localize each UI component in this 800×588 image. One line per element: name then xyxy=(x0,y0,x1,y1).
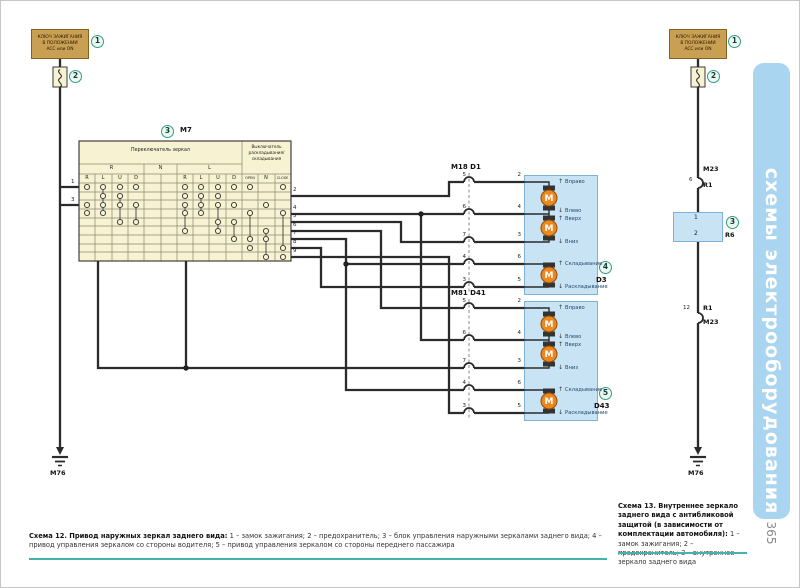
pin-label: 3 xyxy=(511,359,521,365)
pin-label: 1 xyxy=(71,180,75,186)
mirror-actuator-passenger-box xyxy=(524,301,598,421)
column-header: U xyxy=(210,176,226,181)
down-arrow-icon: ↓ xyxy=(558,333,563,340)
unit-ref: R1 xyxy=(703,182,713,189)
pin-label: 7 xyxy=(456,233,466,239)
ground-label: М76 xyxy=(688,470,704,477)
caption-title: Схема 12. Привод наружных зеркал заднего… xyxy=(29,532,227,540)
motor-direction-label: Вправо xyxy=(565,179,585,185)
pin-label: 7 xyxy=(293,231,297,237)
pin-label: 6 xyxy=(511,255,521,261)
motor-direction-label: Складывание xyxy=(565,261,602,267)
pin-label: 6 xyxy=(689,178,693,184)
motor-direction-label: Раскладывание xyxy=(565,410,608,416)
unit-ref: R1 xyxy=(703,305,713,312)
harness-ref: M23 xyxy=(703,166,719,173)
column-header-open: OPEN xyxy=(242,177,258,181)
caption-divider xyxy=(29,558,607,560)
ignition-switch-box: КЛЮЧ ЗАЖИГАНИЯ В ПОЛОЖЕНИИ ACC или ON xyxy=(31,29,89,59)
column-header-n: N xyxy=(258,176,274,181)
callout-2: 2 xyxy=(707,70,720,83)
table-header-left: Переключатель зеркал xyxy=(81,149,240,154)
pin-label: 2 xyxy=(293,188,297,194)
down-arrow-icon: ↓ xyxy=(558,283,563,290)
connector-ref: M18 D1 xyxy=(451,164,481,171)
mirror-actuator-driver-box xyxy=(524,175,598,295)
scheme13-caption: Схема 13. Внутреннее зеркало заднего вид… xyxy=(618,502,747,568)
table-header-right: Выключатель раскладывания/ складывания xyxy=(243,144,290,162)
ignition-switch-box-2: КЛЮЧ ЗАЖИГАНИЯ В ПОЛОЖЕНИИ ACC или ON xyxy=(669,29,727,59)
up-arrow-icon: ↑ xyxy=(558,386,563,393)
motor-direction-label: Раскладывание xyxy=(565,284,608,290)
callout-3: 3 xyxy=(161,125,174,138)
group-header-r: R xyxy=(79,166,144,171)
up-arrow-icon: ↑ xyxy=(558,178,563,185)
ground-symbols xyxy=(52,447,706,466)
pin-label: 6 xyxy=(511,381,521,387)
down-arrow-icon: ↓ xyxy=(558,364,563,371)
component-ref-m7: M7 xyxy=(180,127,192,134)
component-ref-d43: D43 xyxy=(594,403,610,410)
motor-direction-label: Вверх xyxy=(565,342,581,348)
up-arrow-icon: ↑ xyxy=(558,304,563,311)
column-header: L xyxy=(95,176,111,181)
group-header-l: L xyxy=(177,166,242,171)
pin-label: 6 xyxy=(293,223,297,229)
caption-divider xyxy=(618,552,747,554)
pin-label: 4 xyxy=(293,206,297,212)
pin-label: 4 xyxy=(511,331,521,337)
column-header: D xyxy=(226,176,242,181)
motor-direction-label: Вправо xyxy=(565,305,585,311)
pin-label: 2 xyxy=(511,299,521,305)
group-header-n: N xyxy=(144,166,177,171)
down-arrow-icon: ↓ xyxy=(558,409,563,416)
column-header: D xyxy=(128,176,144,181)
down-arrow-icon: ↓ xyxy=(558,238,563,245)
callout-1: 1 xyxy=(728,35,741,48)
motor-direction-label: Вниз xyxy=(565,239,578,245)
column-header: R xyxy=(177,176,193,181)
caption-title: Схема 13. Внутреннее зеркало заднего вид… xyxy=(618,502,738,538)
pin-label: 6 xyxy=(456,331,466,337)
pin-label: 5 xyxy=(511,278,521,284)
pin-label: 3 xyxy=(511,233,521,239)
pin-label: 5 xyxy=(511,404,521,410)
motor-direction-label: Вверх xyxy=(565,216,581,222)
pin-label: 3 xyxy=(71,198,75,204)
down-arrow-icon: ↓ xyxy=(558,207,563,214)
scheme12-caption: Схема 12. Привод наружных зеркал заднего… xyxy=(29,532,607,551)
component-ref-d3: D3 xyxy=(596,277,607,284)
motor-direction-label: Влево xyxy=(565,334,581,340)
pin-label: 8 xyxy=(293,240,297,246)
pin-label: 2 xyxy=(511,173,521,179)
column-header: L xyxy=(193,176,209,181)
up-arrow-icon: ↑ xyxy=(558,260,563,267)
harness-ref: M23 xyxy=(703,319,719,326)
fuse-icons xyxy=(53,67,705,87)
ground-label: М76 xyxy=(50,470,66,477)
component-ref-r6: R6 xyxy=(725,232,735,239)
pin-label: 5 xyxy=(456,173,466,179)
pin-label: 3 xyxy=(456,278,466,284)
column-header-close: CLOSE xyxy=(274,177,291,181)
inner-mirror-box xyxy=(673,212,723,242)
pin-label: 4 xyxy=(456,381,466,387)
connector-ref: M81 D41 xyxy=(451,290,486,297)
column-header: R xyxy=(79,176,95,181)
pin-label: 4 xyxy=(511,205,521,211)
page-number: 365 xyxy=(764,522,778,545)
pin-label: 1 xyxy=(694,215,698,221)
motor-direction-label: Влево xyxy=(565,208,581,214)
motor-direction-label: Вниз xyxy=(565,365,578,371)
callout-3: 3 xyxy=(726,216,739,229)
pin-label: 5 xyxy=(293,214,297,220)
callout-1: 1 xyxy=(91,35,104,48)
pin-label: 2 xyxy=(694,231,698,237)
section-title-vertical: схемы электрооборудования xyxy=(761,168,783,515)
pin-label: 6 xyxy=(456,205,466,211)
pin-label: 9 xyxy=(293,249,297,255)
pin-label: 3 xyxy=(456,404,466,410)
motor-direction-label: Складывание xyxy=(565,387,602,393)
pin-label: 7 xyxy=(456,359,466,365)
up-arrow-icon: ↑ xyxy=(558,215,563,222)
pin-label: 5 xyxy=(456,299,466,305)
pin-label: 12 xyxy=(683,306,690,312)
column-header: U xyxy=(112,176,128,181)
pin-label: 4 xyxy=(456,255,466,261)
manual-page: КЛЮЧ ЗАЖИГАНИЯ В ПОЛОЖЕНИИ ACC или ON КЛ… xyxy=(0,0,800,588)
callout-2: 2 xyxy=(69,70,82,83)
wiring-svg: M M M M M M xyxy=(1,1,800,588)
up-arrow-icon: ↑ xyxy=(558,341,563,348)
